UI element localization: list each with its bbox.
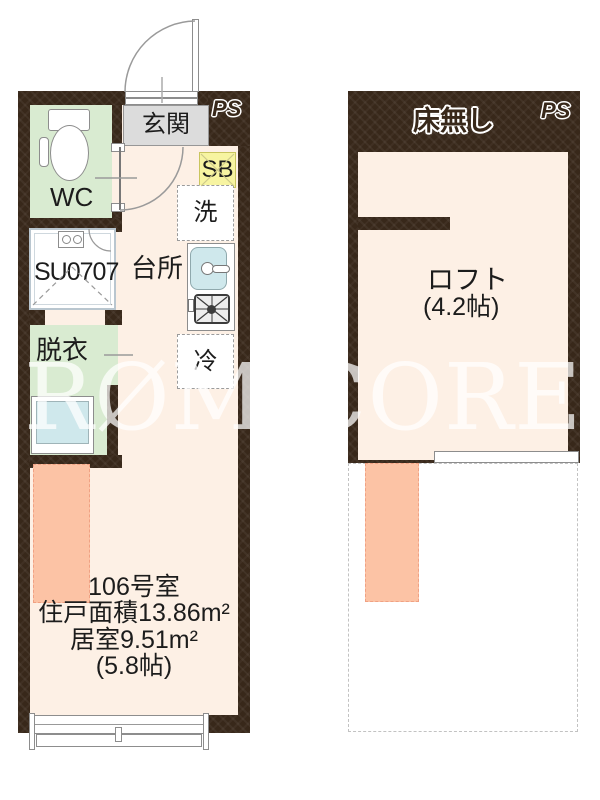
toilet-lever-icon <box>39 137 49 167</box>
unit-area: 住戸面積13.86m² <box>30 600 238 626</box>
washer-label: 洗 <box>194 200 218 225</box>
room-info-block: 106号室 住戸面積13.86m² 居室9.51m² (5.8帖) <box>30 574 238 679</box>
entrance-threshold <box>125 98 198 105</box>
door-jamb <box>111 203 125 212</box>
dressing-right-wall <box>107 385 118 458</box>
entry-label: 玄関 <box>142 112 190 137</box>
loft-label: ロフト <box>427 266 508 294</box>
door-opening <box>112 147 122 208</box>
living-area: 居室9.51m² <box>30 627 238 653</box>
floor-plan-image: PS WC SU0707 脱衣 玄関 SB 洗 冷 <box>0 0 600 800</box>
shoe-box: SB <box>199 152 236 188</box>
washbasin-bowl-icon <box>36 401 89 444</box>
loft-tatami-label: (4.2帖) <box>423 294 499 320</box>
loft-highlight <box>365 463 419 602</box>
stove-knob-icon <box>188 299 194 312</box>
window-end-cap <box>203 713 209 750</box>
door-jamb <box>111 143 125 152</box>
fridge-space: 冷 <box>177 334 234 389</box>
ps-label-loft: PS <box>541 99 570 122</box>
entrance-door-arc <box>125 21 195 92</box>
no-floor-label: 床無し <box>413 107 494 135</box>
bath-knob-icon <box>73 235 82 244</box>
room-number: 106号室 <box>30 574 238 600</box>
living-tatami: (5.8帖) <box>30 653 238 679</box>
fridge-label: 冷 <box>194 349 218 374</box>
unit-bath-label: SU0707 <box>34 259 118 285</box>
toilet-bowl-icon <box>50 125 89 181</box>
entrance-threshold <box>125 91 198 98</box>
washer-space: 洗 <box>177 185 234 241</box>
shoe-box-label: SB <box>201 157 233 182</box>
loft-edge-band <box>434 451 579 463</box>
wc-label: WC <box>50 184 93 211</box>
faucet-handle-icon <box>212 265 230 273</box>
main-window-rail <box>33 724 205 725</box>
loft-wall-stub <box>358 217 450 230</box>
bath-knob-icon <box>62 235 71 244</box>
kitchen-label: 台所 <box>131 255 183 282</box>
window-latch <box>115 727 122 742</box>
stove-burner-icon <box>207 305 216 314</box>
ps-label-main: PS <box>212 97 241 120</box>
window-end-cap <box>29 713 35 750</box>
wall-stub <box>29 310 45 325</box>
dressing-label: 脱衣 <box>36 337 88 364</box>
wall-stub <box>105 310 122 325</box>
entrance-door-leaf <box>192 19 199 92</box>
